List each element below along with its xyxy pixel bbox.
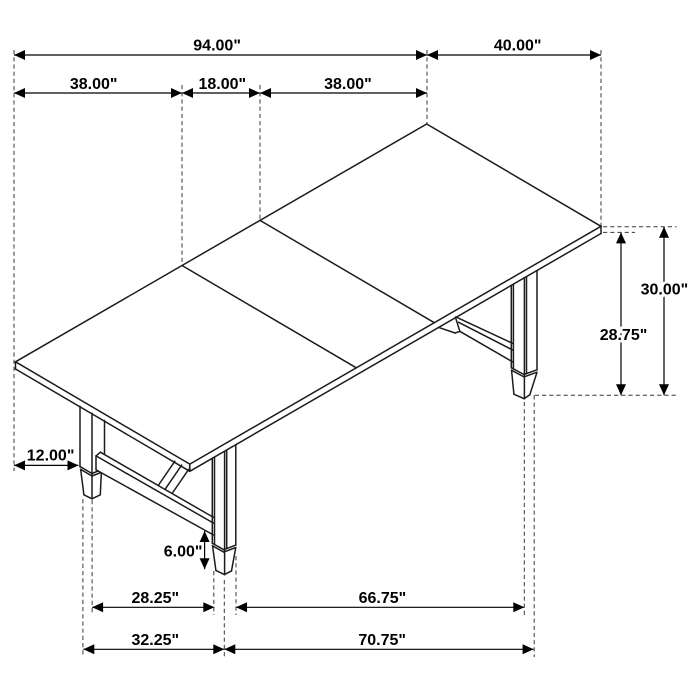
svg-text:28.75": 28.75" [600, 327, 648, 344]
svg-text:28.25": 28.25" [131, 590, 179, 607]
svg-text:66.75": 66.75" [359, 590, 407, 607]
svg-text:38.00": 38.00" [70, 76, 118, 93]
svg-text:30.00": 30.00" [641, 281, 689, 298]
svg-text:40.00": 40.00" [494, 38, 542, 55]
svg-text:12.00": 12.00" [27, 447, 75, 464]
svg-text:94.00": 94.00" [193, 38, 241, 55]
svg-text:18.00": 18.00" [198, 76, 246, 93]
svg-text:6.00": 6.00" [164, 544, 203, 561]
svg-text:38.00": 38.00" [324, 76, 372, 93]
svg-text:32.25": 32.25" [131, 632, 179, 649]
svg-text:70.75": 70.75" [358, 632, 406, 649]
